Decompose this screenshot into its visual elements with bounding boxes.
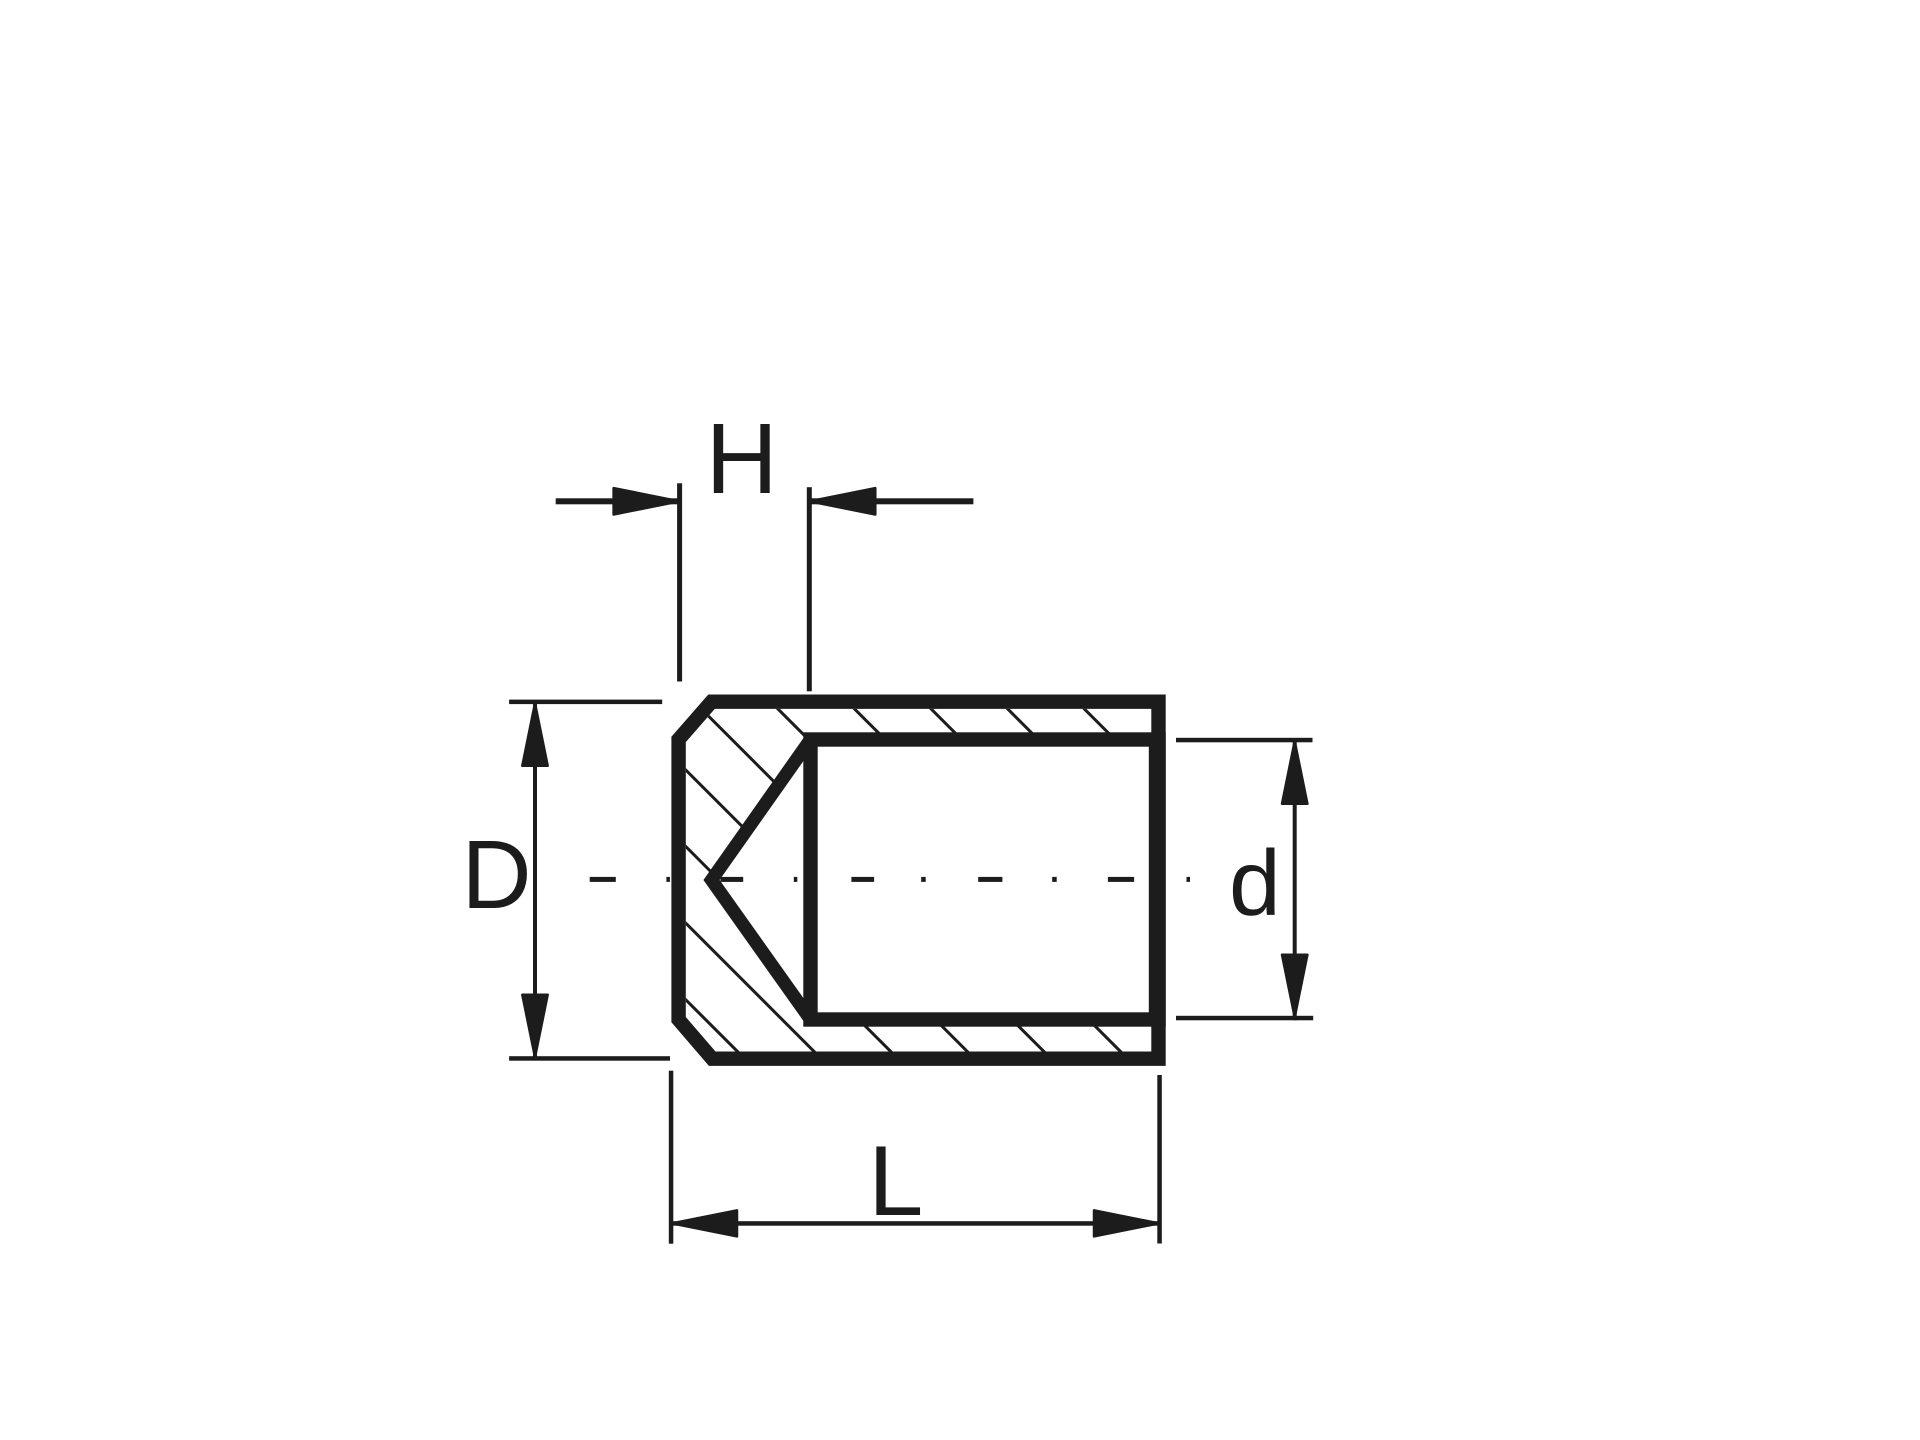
svg-text:H: H xyxy=(706,403,778,515)
svg-text:L: L xyxy=(868,1125,923,1236)
svg-text:d: d xyxy=(1229,831,1281,935)
svg-text:D: D xyxy=(461,820,531,929)
